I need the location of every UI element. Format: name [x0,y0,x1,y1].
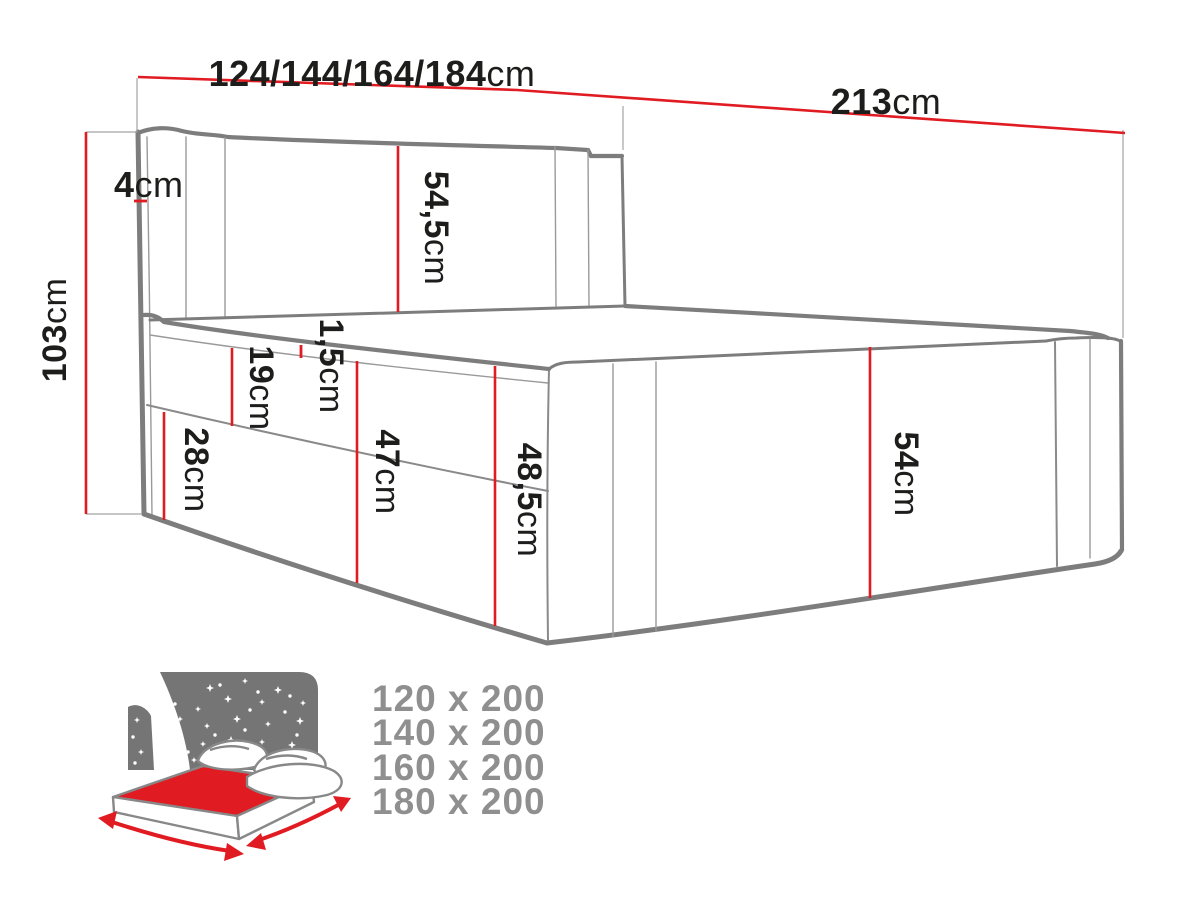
label-side-height: 47cm [368,429,406,514]
icon-length-arrow-head-left [246,833,266,850]
icon-width-arrow-head-left [98,811,117,829]
label-headboard-above: 54,5cm [417,171,455,286]
label-mattress-height: 19cm [242,345,280,430]
bed-size-icon [98,672,351,861]
label-length: 213cm [831,81,942,122]
extension-lines [86,78,1123,514]
label-foot-height: 54cm [887,431,925,516]
headboard-seam-4 [588,150,589,306]
base-front-bottom-edge [144,514,547,643]
icon-length-arrow-head-right [333,796,351,812]
label-topper-height: 1,5cm [312,318,350,413]
headboard-seam-3 [555,147,556,306]
label-side-total-height: 48,5cm [510,443,548,558]
headboard-top-edge [138,128,622,156]
foot-left-post-top [549,362,578,369]
label-width-options: 124/144/164/184cm [209,53,536,94]
mattress-head-edge [150,306,625,320]
size-variant-4: 180 x 200 [372,781,546,822]
label-base-height: 28cm [177,427,215,512]
label-total-height: 103cm [36,278,74,383]
icon-duvet [247,764,342,798]
foot-top-edge [578,341,1046,362]
foot-right-post-top [1046,337,1120,341]
label-headboard-thickness: 4cm [114,164,184,205]
dimension-lines [86,77,1125,626]
size-variants-list: 120 x 200 140 x 200 160 x 200 180 x 200 [372,678,546,822]
bed-dimension-diagram: 124/144/164/184cm 213cm 4cm 103cm 54,5cm… [0,0,1200,900]
base-foot-bottom-edge [547,551,1121,643]
headboard-right-edge [622,156,625,306]
mattress-far-edge [625,306,1108,338]
bed-right-edge [1121,341,1122,550]
foot-right-post-edge [1055,342,1057,566]
bed-base [144,337,1122,643]
icon-width-arrow-head-right [224,843,244,861]
diagram-canvas: 124/144/164/184cm 213cm 4cm 103cm 54,5cm… [0,0,1200,900]
